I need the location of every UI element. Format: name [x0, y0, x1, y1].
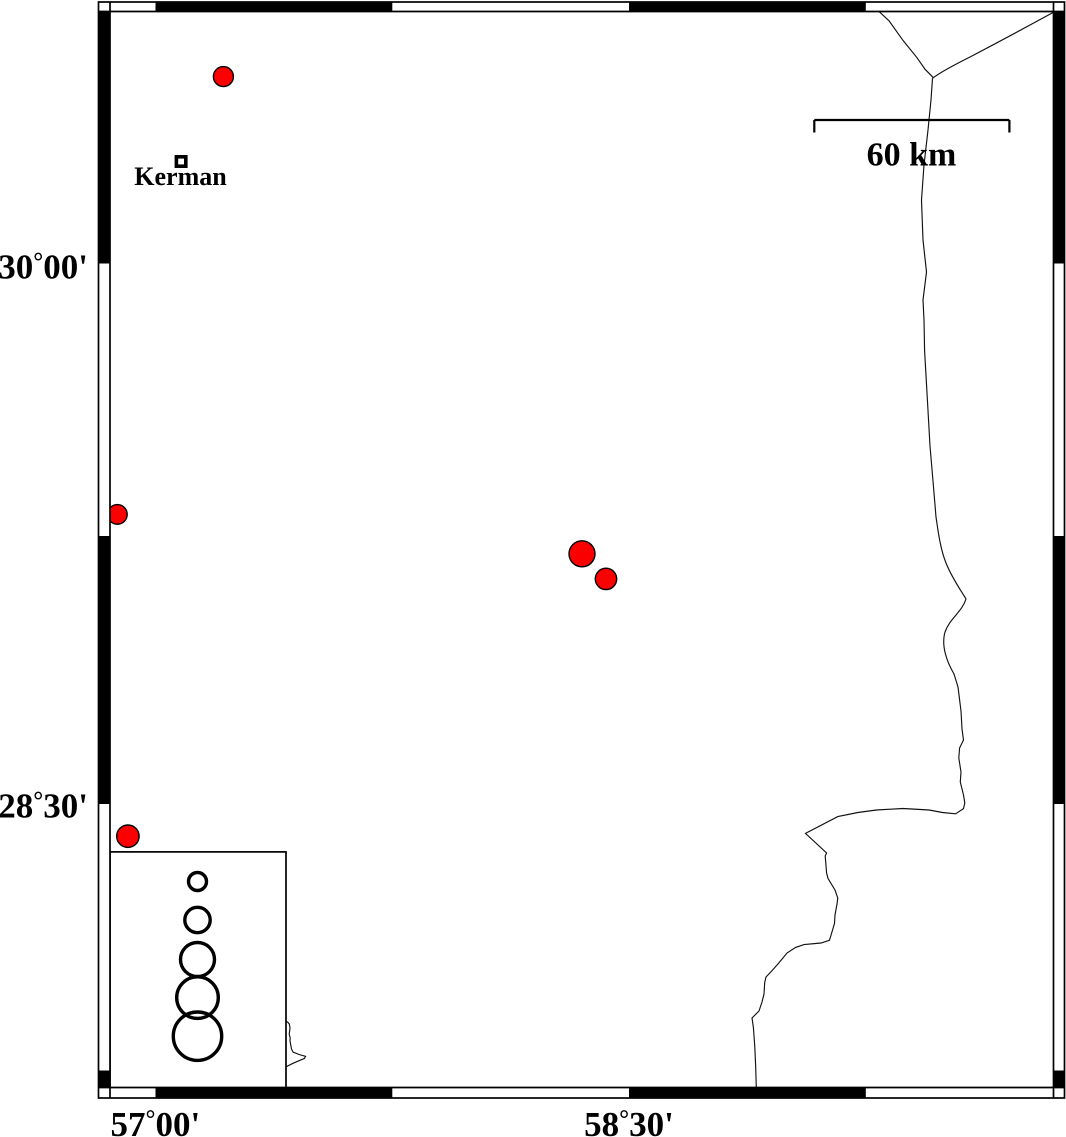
svg-text:28°30': 28°30' — [0, 787, 88, 826]
svg-text:30°00': 30°00' — [0, 248, 88, 287]
svg-text:57°00': 57°00' — [111, 1105, 201, 1137]
svg-text:58°30': 58°30' — [584, 1105, 674, 1137]
svg-text:Kerman: Kerman — [134, 162, 227, 191]
svg-text:60 km: 60 km — [867, 137, 957, 174]
